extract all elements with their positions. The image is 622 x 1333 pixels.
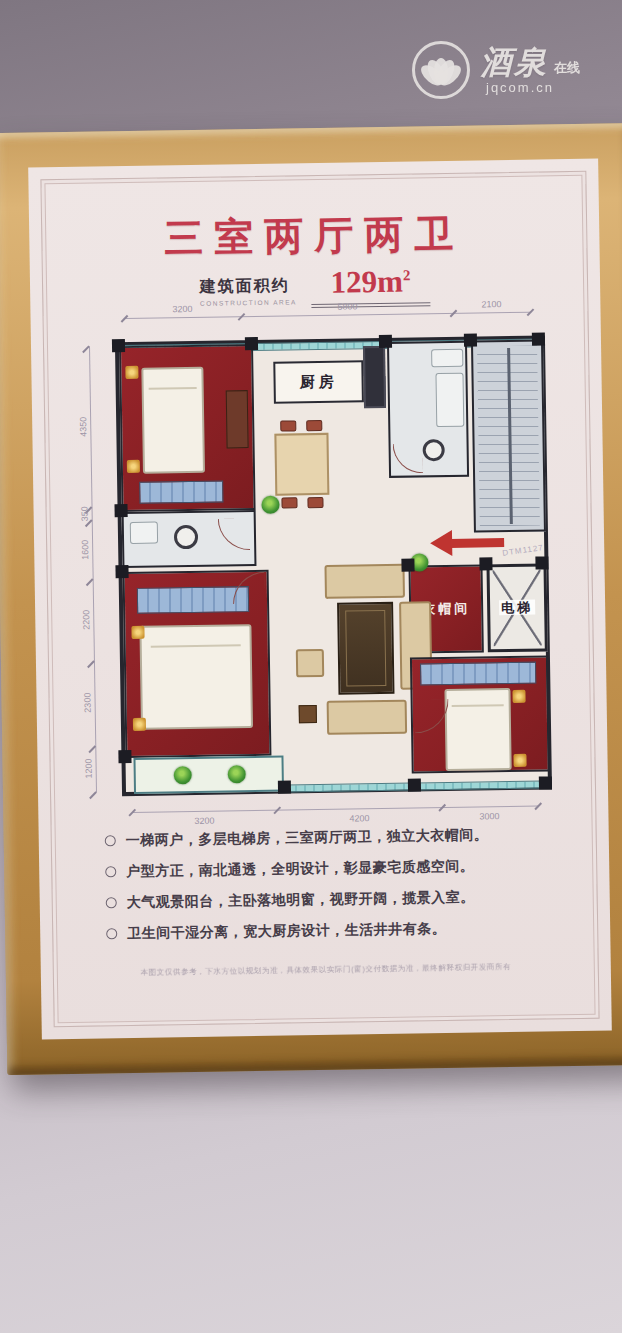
plant-icon [228, 765, 246, 783]
dim-bottom-1: 3200 [194, 816, 214, 826]
watermark-text: 酒泉 在线 jqcom.cn [480, 46, 580, 94]
kitchen-label-text: 厨房 [299, 372, 337, 392]
feature-item: 一梯两户，多层电梯房，三室两厅两卫，独立大衣帽间。 [105, 825, 575, 850]
nightstand-lamp [133, 718, 146, 731]
toilet-icon [423, 439, 445, 461]
plant-icon [174, 766, 192, 784]
elevator-label-text: 电梯 [490, 598, 544, 617]
dim-left-1: 4350 [78, 417, 88, 437]
dim-left-6: 1200 [83, 759, 93, 779]
toilet-icon [174, 525, 198, 549]
dim-left-3: 1600 [80, 540, 90, 560]
dim-left-5: 2300 [82, 693, 92, 713]
sofa-south [327, 700, 408, 735]
bullet-ring-icon [105, 866, 116, 877]
refrigerator [363, 346, 386, 408]
site-watermark: 酒泉 在线 jqcom.cn [412, 30, 612, 110]
feature-text: 户型方正，南北通透，全明设计，彰显豪宅质感空间。 [126, 858, 474, 881]
watermark-brand: 酒泉 [480, 46, 548, 78]
sink [431, 349, 463, 368]
dim-left-4: 2200 [81, 610, 91, 630]
bullet-ring-icon [105, 835, 116, 846]
dim-top-3: 2100 [481, 299, 501, 309]
chair [280, 420, 296, 431]
entry-arrow-icon [430, 530, 452, 556]
dim-top-1: 3200 [172, 304, 192, 314]
balcony [133, 756, 284, 794]
bed [139, 624, 253, 730]
side-table [299, 705, 317, 723]
feature-item: 卫生间干湿分离，宽大厨房设计，生活井井有条。 [106, 918, 576, 943]
sink [130, 522, 158, 544]
dim-bottom-2: 4200 [349, 813, 369, 823]
nightstand-lamp [512, 690, 525, 703]
dim-line-bottom [132, 806, 538, 813]
dim-left-2: 350 [80, 506, 90, 521]
watermark-tagline: 在线 [554, 61, 580, 78]
chair [281, 497, 297, 508]
elevator-label-chars: 电梯 [499, 600, 535, 616]
nightstand-lamp [513, 754, 526, 767]
nightstand-lamp [125, 366, 138, 379]
dim-bottom-3: 3000 [479, 811, 499, 821]
bullet-ring-icon [106, 897, 117, 908]
living-rug [337, 602, 394, 695]
feature-item: 户型方正，南北通透，全明设计，彰显豪宅质感空间。 [105, 856, 575, 881]
sofa-north [324, 564, 405, 599]
dim-line-left [89, 347, 97, 793]
feature-text: 一梯两户，多层电梯房，三室两厅两卫，独立大衣帽间。 [126, 826, 489, 850]
dining-table [274, 433, 329, 496]
area-superscript: 2 [403, 267, 411, 283]
bathtub [435, 373, 464, 427]
dresser [139, 481, 223, 504]
feature-text: 大气观景阳台，主卧落地明窗，视野开阔，揽景入室。 [127, 889, 475, 912]
room-elevator: 电梯 [486, 563, 547, 652]
area-number: 129m [330, 264, 403, 300]
watermark-domain: jqcom.cn [480, 81, 580, 94]
armchair [296, 649, 324, 677]
room-kitchen-label: 厨房 [273, 360, 364, 403]
poster-title: 三室两厅两卫 [29, 205, 600, 268]
wardrobe [420, 662, 536, 686]
area-label-cn: 建筑面积约 [200, 275, 297, 298]
bed [444, 688, 511, 771]
chair [306, 420, 322, 431]
nightstand-lamp [131, 626, 144, 639]
floorplan-poster: 三室两厅两卫 建筑面积约 CONSTRUCTION AREA 129m2 320… [28, 159, 612, 1040]
bullet-ring-icon [106, 928, 117, 939]
staircase [471, 339, 546, 532]
nightstand-lamp [127, 460, 140, 473]
feature-item: 大气观景阳台，主卧落地明窗，视野开阔，揽景入室。 [106, 887, 576, 912]
bed [141, 367, 205, 474]
feature-text: 卫生间干湿分离，宽大厨房设计，生活井井有条。 [127, 920, 446, 943]
floor-plan: 3200 5800 2100 4350 350 1600 2200 2300 1… [74, 299, 582, 827]
disclaimer-text: 本图文仅供参考，下水方位以规划为准，具体效果以实际门(窗)交付数据为准，最终解释… [41, 960, 611, 979]
room-bedroom-master [119, 344, 256, 512]
dim-top-2: 5800 [337, 301, 357, 311]
picture-frame: 三室两厅两卫 建筑面积约 CONSTRUCTION AREA 129m2 320… [0, 123, 622, 1075]
lotus-ring-icon [412, 41, 470, 99]
desk [226, 390, 249, 448]
chair [307, 497, 323, 508]
entry-arrow-bar [450, 538, 504, 548]
feature-list: 一梯两户，多层电梯房，三室两厅两卫，独立大衣帽间。 户型方正，南北通透，全明设计… [105, 825, 577, 956]
